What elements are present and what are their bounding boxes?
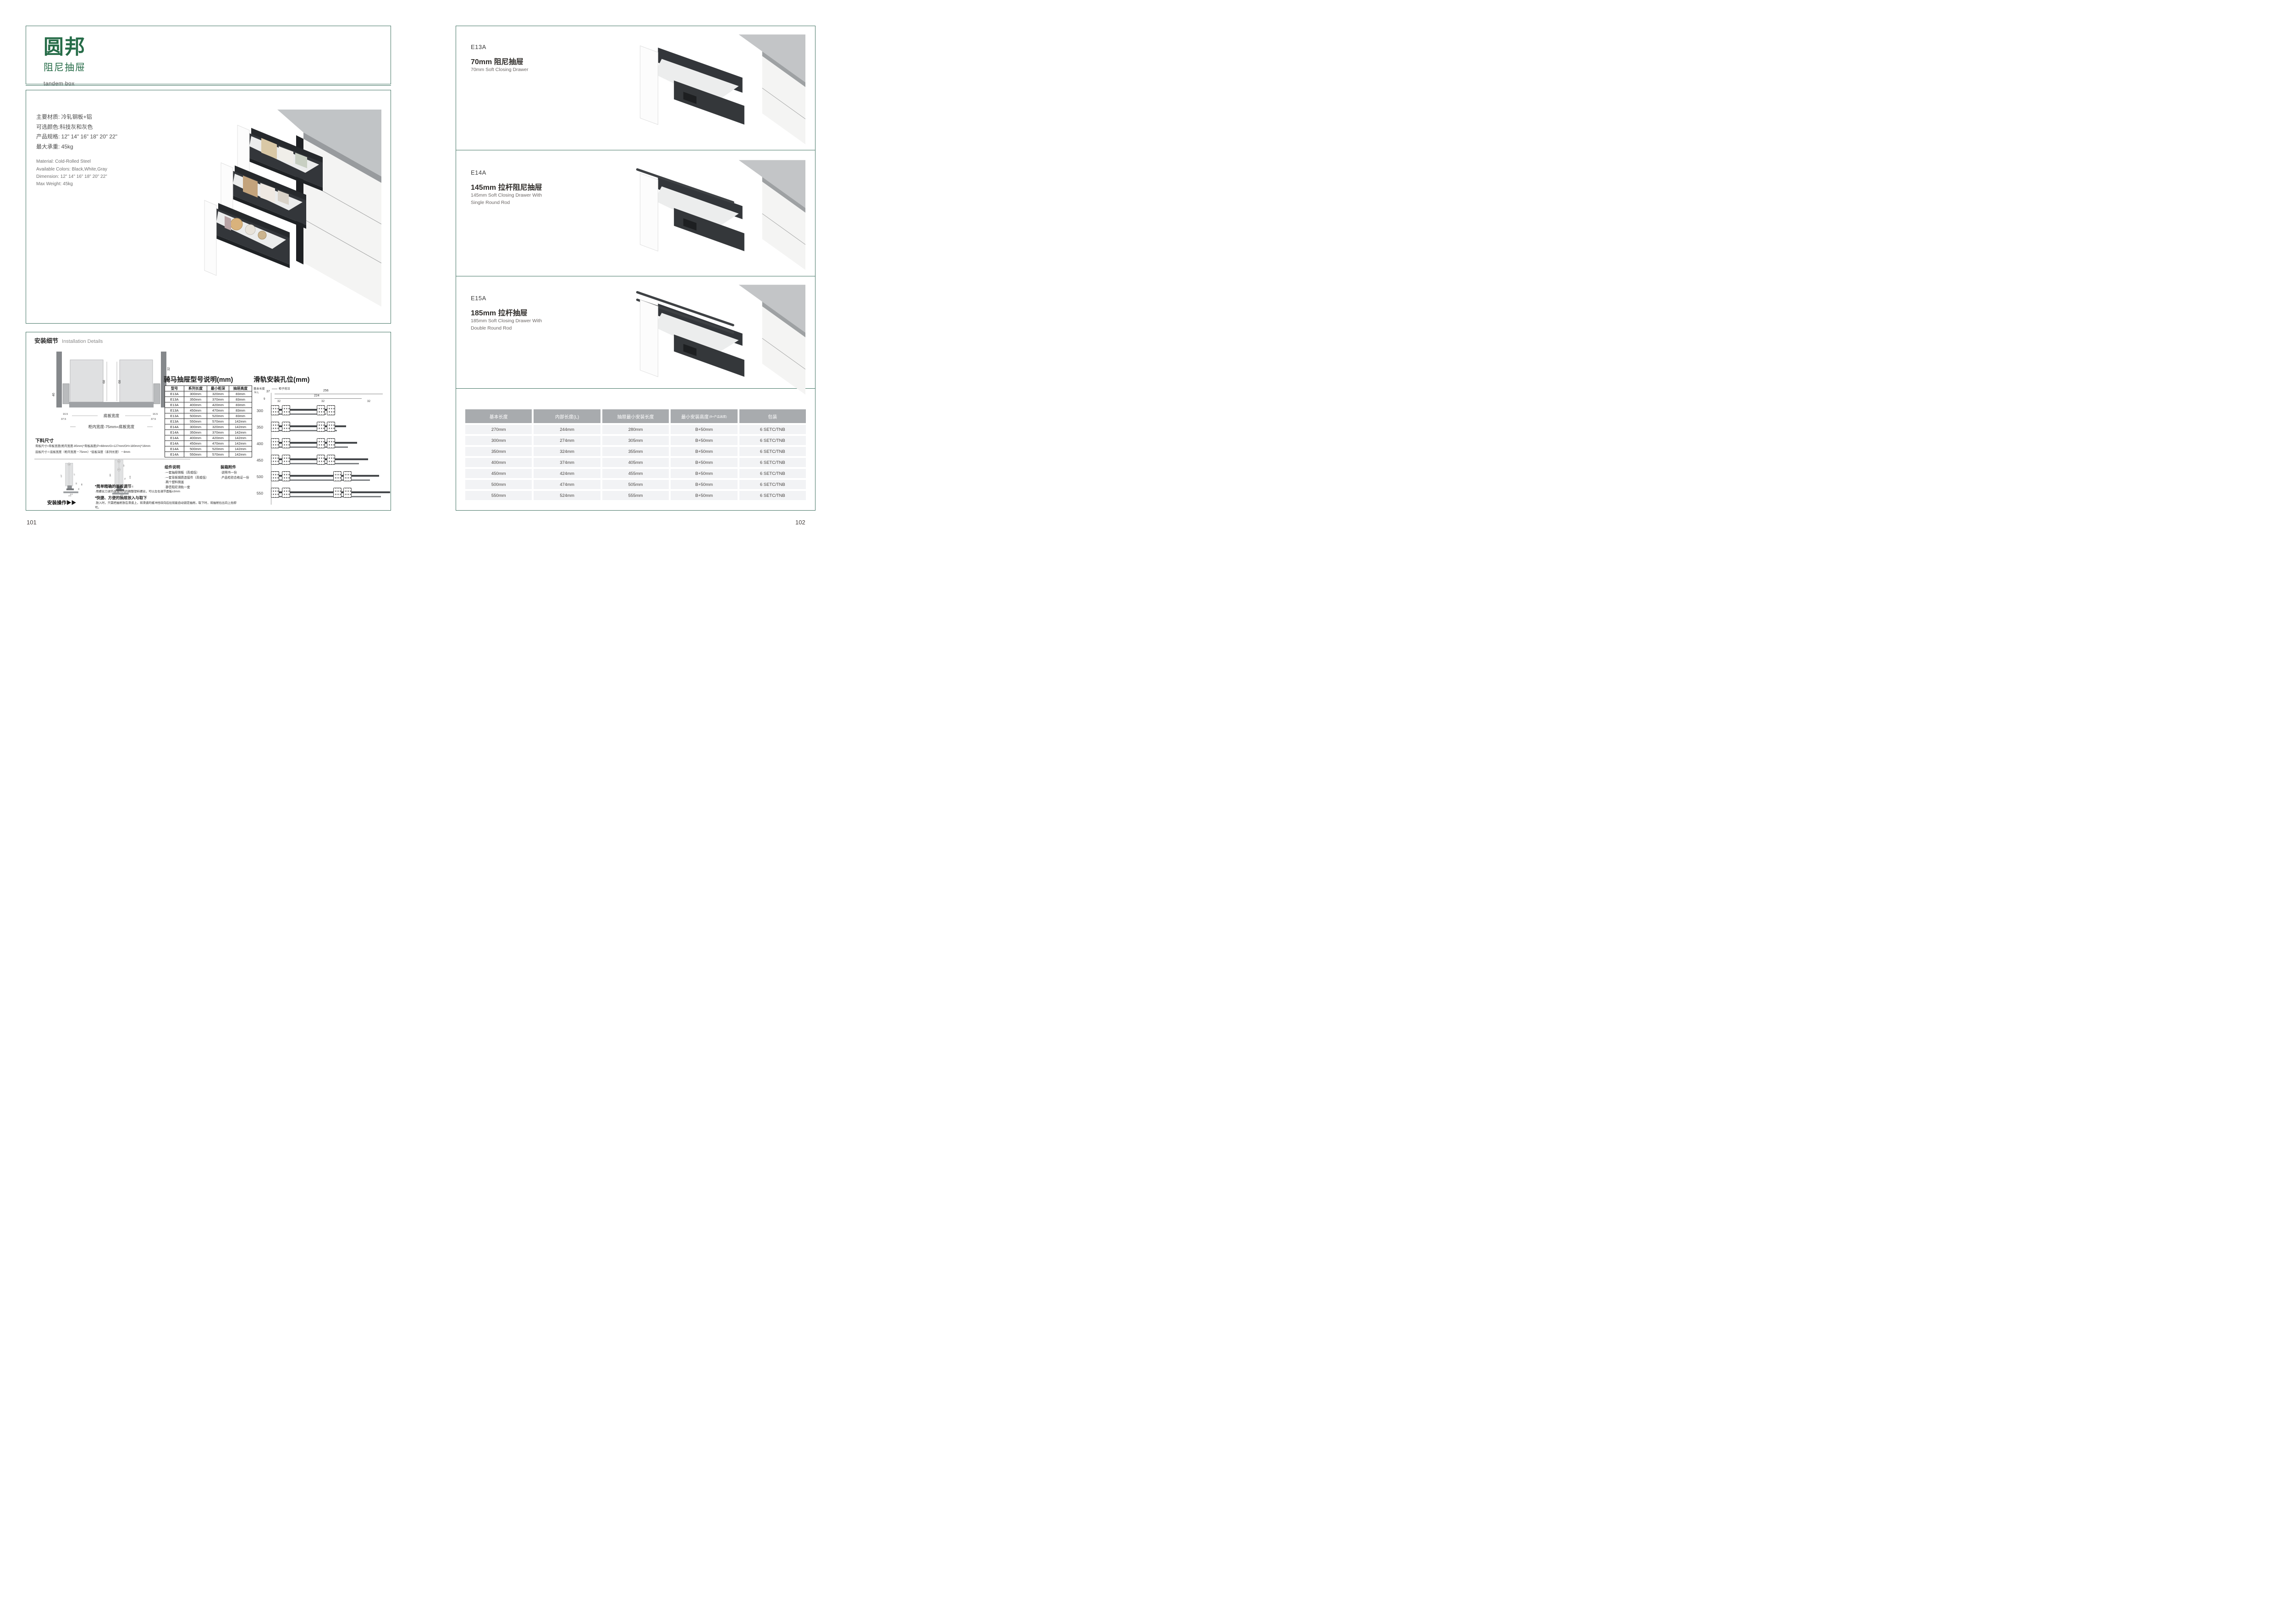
model-table-cell: 142mm	[229, 435, 252, 441]
rail-track	[265, 438, 387, 453]
width-formula: 柜内宽度-75mm=底板宽度	[88, 424, 135, 429]
rail-row: 500	[253, 471, 387, 487]
size-table-cell: 350mm	[465, 447, 532, 456]
rail-bracket-icon	[343, 488, 352, 498]
size-table-cell: 305mm	[602, 436, 669, 445]
size-table-cell: B+50mm	[671, 436, 737, 445]
operation-note-head: *快捷、方便的抽屉放入与取下	[95, 495, 237, 501]
product-code-e15a: E15A	[471, 295, 486, 302]
rail-bracket-icon	[271, 422, 279, 432]
page-number-right: 102	[795, 519, 805, 526]
section-separator	[456, 276, 815, 276]
spec-line: 产品规格: 12" 14" 16" 18" 20" 22"	[36, 132, 117, 142]
model-table-row: E13A300mm320mm83mm	[165, 391, 252, 397]
size-table-cell: 400mm	[465, 458, 532, 467]
svg-text:127: 127	[61, 474, 62, 477]
model-col-header: 型号	[165, 386, 184, 391]
size-col-header: 包装	[739, 409, 806, 423]
model-table-row: E13A550mm570mm142mm	[165, 419, 252, 424]
product-name-en-e13a: 70mm Soft Closing Drawer	[471, 66, 553, 74]
operation-arrows-icon: ▶▶	[66, 500, 76, 506]
rail-length-label: 400	[253, 438, 265, 454]
rail-length-label: 500	[253, 471, 265, 487]
svg-text:16.5: 16.5	[63, 413, 68, 416]
model-table-cell: 142mm	[229, 424, 252, 430]
model-table-cell: 142mm	[229, 430, 252, 435]
rail-bracket-icon	[282, 488, 290, 498]
cross-section-diagram: 68 68 46 32 54 16.5 37.5 16.5 37.5 底板宽度 …	[52, 348, 171, 435]
model-table-body: E13A300mm320mm83mmE13A350mm370mm83mmE13A…	[165, 391, 252, 457]
size-table-cell: B+50mm	[671, 469, 737, 478]
component-item: ·一套背板钢质连接件（高或低）	[165, 476, 220, 481]
product-photo-tandem-drawers	[183, 107, 381, 309]
product-code-e13a: E13A	[471, 44, 486, 50]
size-table-cell: B+50mm	[671, 425, 737, 434]
model-table-cell: 500mm	[184, 413, 207, 419]
model-table-cell: 320mm	[207, 391, 229, 397]
rail-diagram-title: 滑轨安装孔位(mm)	[253, 374, 309, 384]
rail-bracket-icon	[271, 405, 279, 415]
brand-header-box: 圆邦 阻尼抽屉 tandem box	[26, 26, 391, 84]
model-table-title: 骑马抽屉型号说明(mm)	[164, 374, 233, 384]
size-col-header-note: (B=产品高度)	[709, 414, 727, 418]
size-table-cell: 244mm	[534, 425, 600, 434]
component-item: ·静音阻尼滑轨一套	[165, 485, 220, 490]
model-table-cell: 320mm	[207, 424, 229, 430]
rail-dim: 32	[367, 400, 370, 403]
model-table-cell: 570mm	[207, 452, 229, 457]
size-table-cell: B+50mm	[671, 447, 737, 456]
rail-row: 550	[253, 487, 387, 504]
spec-line: 最大承重: 45kg	[36, 142, 117, 152]
size-table-cell: B+50mm	[671, 491, 737, 500]
rail-length-label: 350	[253, 421, 265, 438]
product-name-cn-e13a: 70mm 阻尼抽屉	[471, 55, 523, 66]
model-table-cell: 83mm	[229, 413, 252, 419]
model-table-cell: E13A	[165, 413, 184, 419]
model-table-cell: 520mm	[207, 413, 229, 419]
model-table: 型号 系列长度 最小柜深 抽屉高度 E13A300mm320mm83mmE13A…	[165, 385, 252, 457]
size-table-cell: 374mm	[534, 458, 600, 467]
model-table-cell: E13A	[165, 419, 184, 424]
rail-row: 350	[253, 421, 387, 438]
model-table-cell: E14A	[165, 446, 184, 452]
rail-bracket-icon	[327, 422, 335, 432]
model-col-header: 最小柜深	[207, 386, 229, 391]
brand-product-line: 阻尼抽屉	[44, 60, 86, 74]
rail-bracket-icon	[282, 455, 290, 465]
model-table-cell: 420mm	[207, 402, 229, 408]
model-table-cell: 500mm	[184, 446, 207, 452]
rail-dim: 9	[264, 397, 265, 401]
model-table-cell: 83mm	[229, 397, 252, 402]
rail-bracket-icon	[333, 471, 342, 481]
svg-text:37.5: 37.5	[61, 418, 66, 421]
spec-block: 主要材质: 冷轧钢板+铝 可选颜色:科技灰和灰色 产品规格: 12" 14" 1…	[36, 112, 117, 188]
rail-bracket-icon	[343, 471, 352, 481]
model-table-cell: 470mm	[207, 408, 229, 413]
size-table: 基本长度 内部长度(L) 抽屉最小安装长度 最小安装高度(B=产品高度) 包装 …	[465, 409, 806, 500]
model-table-cell: E14A	[165, 430, 184, 435]
rail-bracket-icon	[282, 438, 290, 448]
brand-logo: 圆邦	[44, 37, 86, 57]
model-table-cell: 142mm	[229, 452, 252, 457]
product-image-e13a	[613, 32, 805, 144]
rail-bracket-icon	[282, 422, 290, 432]
operation-note-body: ·放入时，只需把抽屉放在滑道上，将滑道的缓冲挡块向后拉就能自动锁定抽屉。取下时，…	[95, 501, 237, 510]
model-table-cell: 400mm	[184, 402, 207, 408]
spec-line: 主要材质: 冷轧钢板+铝	[36, 112, 117, 122]
model-table-cell: E14A	[165, 452, 184, 457]
rail-dim: 256	[323, 389, 329, 392]
page-number-left: 101	[27, 519, 37, 526]
size-col-header: 内部长度(L)	[534, 409, 600, 423]
rail-length-label: 300	[253, 405, 265, 421]
component-item: ·两个塑料侧盖	[165, 480, 220, 485]
model-table-cell: 142mm	[229, 419, 252, 424]
rail-row: 300	[253, 405, 387, 421]
model-table-cell: 370mm	[207, 397, 229, 402]
model-table-cell: 550mm	[184, 419, 207, 424]
size-table-cell: B+50mm	[671, 458, 737, 467]
size-table-cell: 424mm	[534, 469, 600, 478]
profile-diagram-low: 127 77 32 86 54 16.5 37.5	[50, 462, 94, 496]
installation-title-en: Installation Details	[62, 339, 103, 344]
model-table-cell: 570mm	[207, 419, 229, 424]
model-table-cell: E13A	[165, 402, 184, 408]
rail-row: 450	[253, 454, 387, 471]
svg-text:32: 32	[76, 483, 77, 484]
product-name-cn-e14a: 145mm 拉杆阻尼抽屉	[471, 181, 542, 192]
model-table-cell: 83mm	[229, 402, 252, 408]
svg-text:32: 32	[167, 367, 171, 371]
model-table-row: E14A500mm520mm142mm	[165, 446, 252, 452]
size-col-header: 抽屉最小安装长度	[602, 409, 669, 423]
size-table-cell: 355mm	[602, 447, 669, 456]
model-table-cell: 83mm	[229, 391, 252, 397]
model-table-cell: E14A	[165, 435, 184, 441]
product-image-e14a	[613, 157, 805, 270]
operation-label: 安装操作	[47, 500, 66, 506]
rail-dim: 32	[321, 400, 325, 403]
model-table-cell: 450mm	[184, 408, 207, 413]
rail-bracket-icon	[271, 438, 279, 448]
model-table-row: E13A350mm370mm83mm	[165, 397, 252, 402]
size-table-cell: 500mm	[465, 480, 532, 489]
rail-track	[265, 421, 387, 437]
rail-track	[265, 405, 387, 420]
section-separator	[456, 150, 815, 150]
size-table-cell: 280mm	[602, 425, 669, 434]
spec-line-en: Available Colors: Black,White,Gray	[36, 166, 117, 173]
model-table-cell: E14A	[165, 424, 184, 430]
components-title: 组件说明	[165, 464, 220, 470]
size-table-cell: 550mm	[465, 491, 532, 500]
svg-text:37.5: 37.5	[68, 495, 71, 496]
rail-hole-diagram: 基本长度 N L 柜子前沿 256 224 37 9 32 32 32 3003…	[253, 386, 387, 506]
spec-line-en: Material: Cold-Rolled Steel	[36, 158, 117, 165]
model-table-cell: E13A	[165, 397, 184, 402]
model-table-row: E14A550mm570mm142mm	[165, 452, 252, 457]
model-table-header-row: 型号 系列长度 最小柜深 抽屉高度	[165, 386, 252, 391]
model-table-cell: 450mm	[184, 441, 207, 446]
rail-axis-label: N L	[254, 391, 259, 394]
components-block: 组件说明 ·一套抽屉侧板（高或低） ·一套背板钢质连接件（高或低） ·两个塑料侧…	[165, 464, 220, 490]
size-table-cell: 6 SETC/TNB	[739, 491, 806, 500]
model-table-cell: 470mm	[207, 441, 229, 446]
model-table-row: E13A500mm520mm83mm	[165, 413, 252, 419]
size-col-header: 基本长度	[465, 409, 532, 423]
svg-text:130: 130	[129, 475, 131, 479]
model-table-row: E13A450mm470mm83mm	[165, 408, 252, 413]
size-table-cell: 505mm	[602, 480, 669, 489]
svg-text:77: 77	[73, 473, 75, 475]
products-panel: E13A 70mm 阻尼抽屉 70mm Soft Closing Drawer …	[456, 26, 815, 511]
component-item: ·一套抽屉侧板（高或低）	[165, 471, 220, 476]
model-table-cell: 142mm	[229, 446, 252, 452]
size-table-cell: 270mm	[465, 425, 532, 434]
size-table-cell: 6 SETC/TNB	[739, 458, 806, 467]
product-name-en-e15a: 185mm Soft Closing Drawer With Double Ro…	[471, 318, 553, 332]
model-table-cell: E13A	[165, 391, 184, 397]
size-table-cell: 524mm	[534, 491, 600, 500]
size-table-cell: 6 SETC/TNB	[739, 469, 806, 478]
svg-text:16.5: 16.5	[153, 413, 158, 416]
svg-text:73: 73	[124, 478, 126, 480]
size-table-cell: 6 SETC/TNB	[739, 436, 806, 445]
svg-text:54: 54	[78, 488, 80, 490]
rail-bar	[271, 409, 335, 411]
rail-dim: 224	[314, 394, 320, 397]
rail-bracket-icon	[327, 405, 335, 415]
rail-length-label: 450	[253, 454, 265, 471]
spec-line-en: Max Weight: 45kg	[36, 181, 117, 188]
model-col-header: 系列长度	[184, 386, 207, 391]
size-col-header: 最小安装高度(B=产品高度)	[671, 409, 737, 423]
catalog-spread: 圆邦 阻尼抽屉 tandem box 主要材质: 冷轧钢板+铝 可选颜色:科技灰…	[0, 0, 830, 541]
rail-bracket-icon	[317, 405, 325, 415]
installation-title-cn: 安装细节	[34, 337, 58, 344]
model-table-cell: 142mm	[229, 441, 252, 446]
size-table-cell: 450mm	[465, 469, 532, 478]
svg-text:37.5: 37.5	[151, 418, 156, 421]
size-table-cell: 300mm	[465, 436, 532, 445]
svg-text:68: 68	[103, 380, 106, 384]
overview-panel: 主要材质: 冷轧钢板+铝 可选颜色:科技灰和灰色 产品规格: 12" 14" 1…	[26, 90, 391, 324]
product-image-e15a	[613, 282, 805, 395]
model-table-cell: 550mm	[184, 452, 207, 457]
model-table-cell: 370mm	[207, 430, 229, 435]
size-table-cell: 405mm	[602, 458, 669, 467]
size-table-cell: 274mm	[534, 436, 600, 445]
rail-track	[265, 487, 387, 503]
svg-text:68: 68	[118, 380, 121, 384]
model-table-cell: E14A	[165, 441, 184, 446]
model-table-row: E13A400mm420mm83mm	[165, 402, 252, 408]
rail-bracket-icon	[271, 471, 279, 481]
size-table-cell: 6 SETC/TNB	[739, 480, 806, 489]
cutting-size-title: 下料尺寸	[35, 437, 54, 444]
rail-bracket-icon	[282, 405, 290, 415]
svg-text:180: 180	[109, 473, 111, 477]
installation-panel: 安装细节Installation Details 68 68 46 32 54 …	[26, 332, 391, 511]
rail-bracket-icon	[271, 488, 279, 498]
rail-rows: 300350400450500550	[253, 405, 387, 504]
rail-bracket-icon	[317, 438, 325, 448]
model-table-cell: 350mm	[184, 430, 207, 435]
model-table-cell: 300mm	[184, 391, 207, 397]
rail-front-label: 柜子前沿	[279, 386, 290, 391]
rail-dim: 32	[277, 400, 281, 403]
model-table-cell: E13A	[165, 408, 184, 413]
model-table-row: E14A350mm370mm142mm	[165, 430, 252, 435]
rail-track	[265, 471, 387, 486]
model-col-header: 抽屉高度	[229, 386, 252, 391]
rail-axis-label: 基本长度	[253, 386, 265, 391]
model-table-row: E14A450mm470mm142mm	[165, 441, 252, 446]
svg-text:46: 46	[52, 393, 55, 396]
model-table-cell: 400mm	[184, 435, 207, 441]
model-table-cell: 83mm	[229, 408, 252, 413]
rail-dim: 37	[266, 390, 270, 393]
rail-bracket-icon	[271, 455, 279, 465]
spec-line-en: Dimension: 12" 14" 16" 18" 20" 22"	[36, 173, 117, 181]
bottom-board-label: 底板宽度	[104, 413, 120, 418]
header-underline	[26, 85, 391, 86]
model-table-cell: 300mm	[184, 424, 207, 430]
size-table-cell: B+50mm	[671, 480, 737, 489]
size-table-cell: 6 SETC/TNB	[739, 425, 806, 434]
model-table-row: E14A300mm320mm142mm	[165, 424, 252, 430]
spec-line: 可选颜色:科技灰和灰色	[36, 122, 117, 132]
size-table-cell: 324mm	[534, 447, 600, 456]
rail-track	[265, 454, 387, 470]
size-table-cell: 6 SETC/TNB	[739, 447, 806, 456]
product-code-e14a: E14A	[471, 169, 486, 176]
rail-bracket-icon	[317, 422, 325, 432]
model-table-row: E14A400mm420mm142mm	[165, 435, 252, 441]
rail-length-label: 550	[253, 487, 265, 504]
rail-bracket-icon	[327, 438, 335, 448]
rail-row: 400	[253, 438, 387, 454]
rail-bracket-icon	[317, 455, 325, 465]
size-table-cell: 555mm	[602, 491, 669, 500]
svg-text:57: 57	[123, 464, 125, 466]
rail-bracket-icon	[333, 488, 342, 498]
size-table-cell: 455mm	[602, 469, 669, 478]
model-table-cell: 420mm	[207, 435, 229, 441]
product-name-en-e14a: 145mm Soft Closing Drawer With Single Ro…	[471, 192, 553, 207]
rail-bracket-icon	[282, 471, 290, 481]
size-table-cell: 474mm	[534, 480, 600, 489]
model-table-cell: 520mm	[207, 446, 229, 452]
rail-bracket-icon	[327, 455, 335, 465]
product-name-cn-e15a: 185mm 拉杆抽屉	[471, 307, 528, 318]
svg-text:86: 86	[81, 484, 83, 485]
model-table-cell: 350mm	[184, 397, 207, 402]
